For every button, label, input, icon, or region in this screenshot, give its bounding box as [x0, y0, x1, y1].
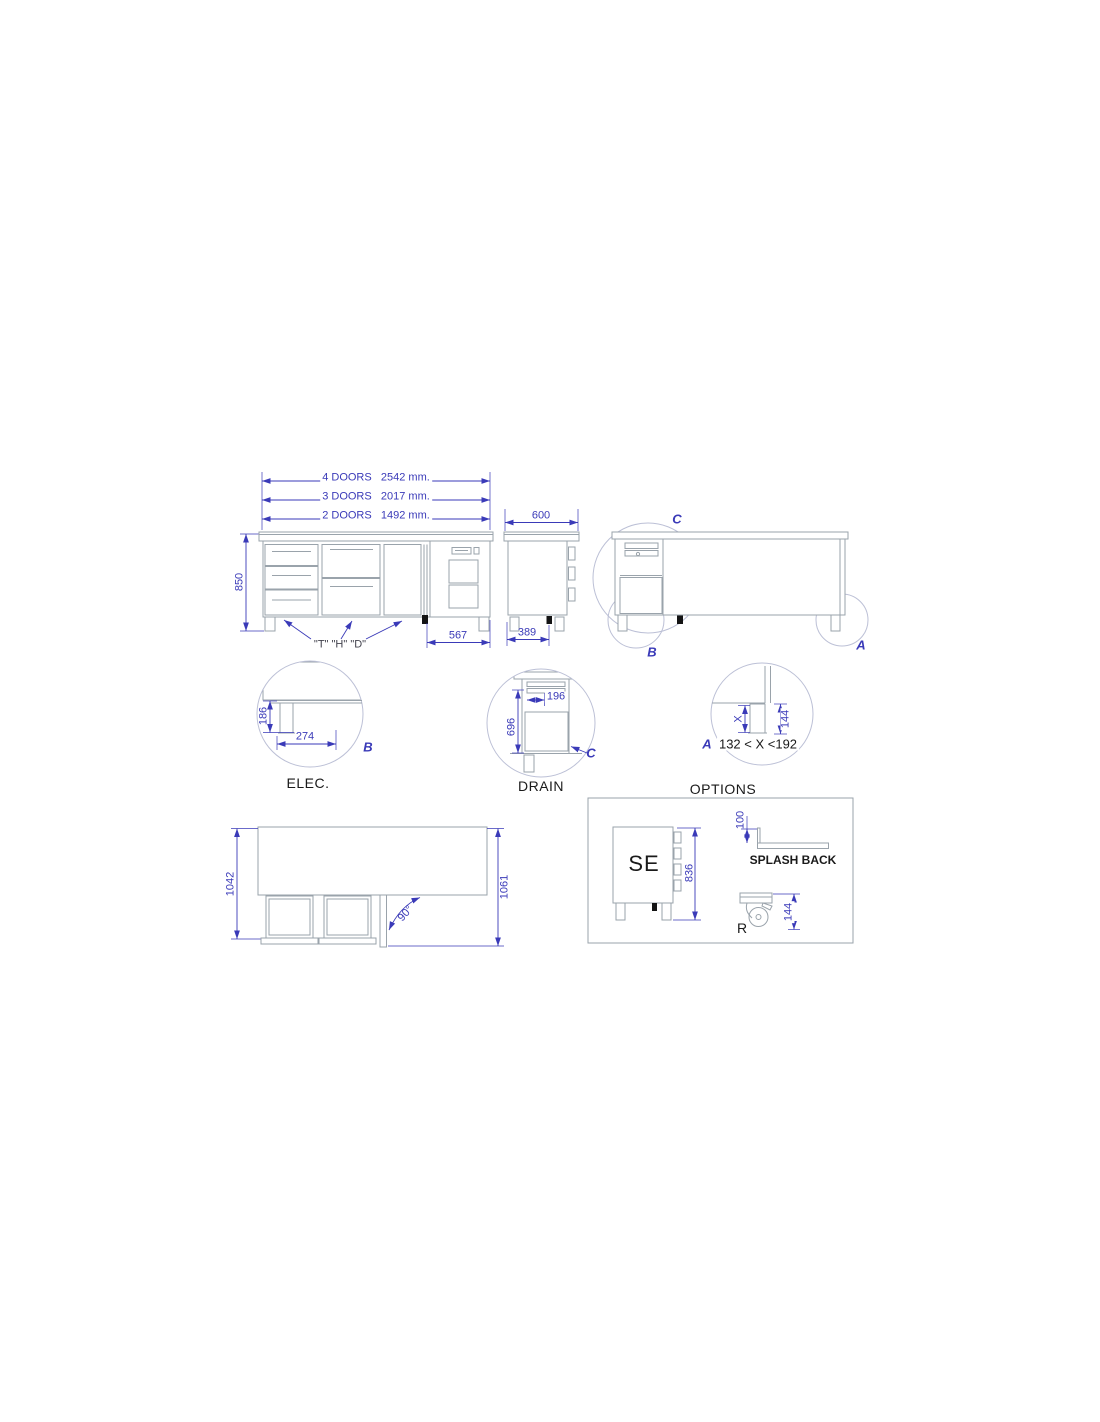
dim-600: 600 [532, 511, 550, 522]
dim-836: 836 [685, 864, 696, 882]
detail-letter-b2: B [363, 741, 372, 754]
top-view [231, 827, 504, 947]
elec-detail [257, 661, 363, 767]
dim-567: 567 [449, 631, 467, 642]
caption-elec: ELEC. [287, 776, 330, 790]
section-labels-thd: "T" "H" "D" [312, 640, 368, 651]
detail-letter-c2: C [586, 747, 595, 760]
dim-3-doors: 3 DOORS 2017 mm. [320, 492, 432, 503]
dim-274: 274 [296, 732, 314, 743]
label-se: SE [628, 853, 659, 875]
dim-389: 389 [518, 628, 536, 639]
detail-letter-a: A [856, 639, 865, 652]
caption-options: OPTIONS [690, 782, 757, 796]
detail-letter-a2: A [702, 738, 711, 751]
dim-2-doors: 2 DOORS 1492 mm. [320, 511, 432, 522]
dim-144-leg: 144 [781, 708, 792, 730]
rear-view [593, 523, 868, 648]
label-caster-r: R [737, 921, 747, 935]
detail-letter-b: B [647, 646, 656, 659]
dim-100: 100 [736, 811, 747, 829]
detail-letter-c: C [672, 513, 681, 526]
leg-range-text: 132 < X <192 [717, 738, 799, 751]
dim-696: 696 [507, 718, 518, 736]
dim-height-850: 850 [235, 571, 246, 593]
dim-144-caster: 144 [784, 901, 795, 923]
caption-splash-back: SPLASH BACK [750, 854, 837, 866]
dim-4-doors: 4 DOORS 2542 mm. [320, 473, 432, 484]
side-view [504, 509, 579, 646]
dim-186: 186 [259, 707, 270, 725]
drain-detail [487, 669, 595, 777]
dim-1042: 1042 [226, 872, 237, 896]
dim-x: X [734, 715, 745, 722]
dim-1061: 1061 [500, 875, 511, 899]
technical-drawing-canvas: 4 DOORS 2542 mm. 3 DOORS 2017 mm. 2 DOOR… [0, 0, 1100, 1422]
dim-196: 196 [545, 692, 567, 703]
caption-drain: DRAIN [518, 779, 564, 793]
technical-drawing-svg [0, 0, 1100, 1422]
